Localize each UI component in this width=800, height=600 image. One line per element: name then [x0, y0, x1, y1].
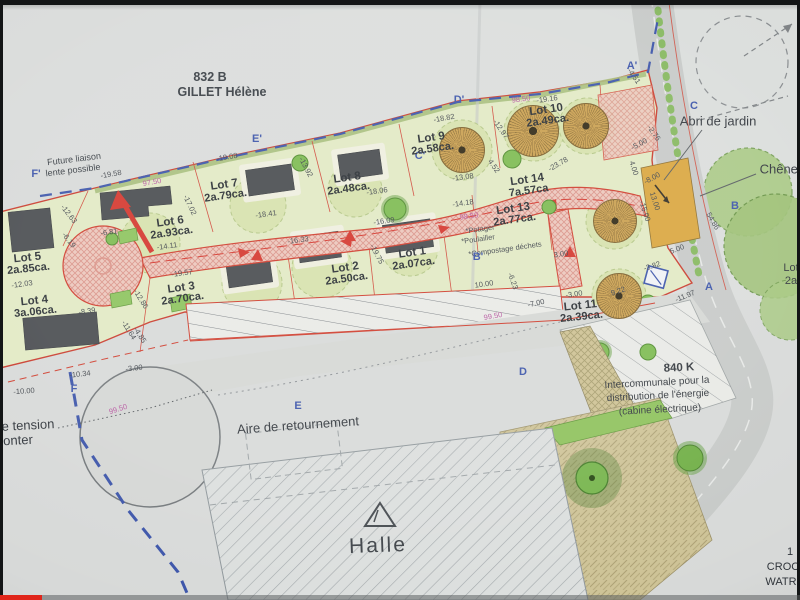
- label-intercommunale-line3: (cabine électrique): [619, 402, 702, 417]
- dimension: -16.33: [287, 234, 309, 246]
- letterbox-left: [0, 0, 3, 600]
- lot-label: Lot 12a.07ca.: [390, 244, 436, 274]
- lot-label: Lot 112a.39ca.: [558, 298, 603, 327]
- dimension: -13.08: [452, 171, 474, 183]
- section-point: C: [690, 100, 698, 112]
- dimension: 98.50: [459, 210, 479, 222]
- section-point: F: [71, 383, 78, 395]
- video-frame: 832 BGILLET HélèneFuture liaisonlente po…: [0, 0, 800, 600]
- lot-label: Lot 102a.49ca.: [524, 101, 570, 131]
- dimension: -13.92: [297, 155, 315, 178]
- dimension: -18.82: [433, 112, 456, 125]
- dimension: -19.58: [100, 168, 123, 181]
- lot-label: Lot 132a.77ca.: [491, 200, 537, 230]
- section-point: D': [454, 94, 465, 106]
- dimension: -4.85: [132, 325, 149, 344]
- label-aire-de-retournement: Aire de retournement: [237, 413, 360, 436]
- dimension: -6.23: [506, 271, 520, 290]
- dimension: -5.00: [629, 136, 648, 152]
- dimension: -12.63: [59, 203, 79, 225]
- section-point: E: [294, 400, 301, 412]
- section-point: A: [705, 281, 713, 293]
- dimension: -3.00: [565, 288, 583, 299]
- label-halle: Halle: [349, 533, 408, 559]
- lot-label: Lot 92a.58ca.: [409, 129, 455, 159]
- lot-label: Lot 43a.06ca.: [12, 293, 57, 322]
- label-watr-fragment: WATR: [765, 576, 796, 588]
- dimension: -8.00: [642, 170, 661, 186]
- section-point: B: [731, 200, 739, 212]
- label-croc-fragment: CROC: [767, 561, 799, 573]
- dimension: -19.75: [368, 242, 386, 265]
- dimension: -3.82: [642, 259, 661, 273]
- dimension: -2.76: [645, 123, 662, 142]
- dimension: 3.00: [553, 249, 569, 260]
- lot-label: Lot 72a.79ca.: [202, 176, 248, 206]
- label-area-fragment: 2a: [785, 275, 797, 287]
- section-point: F': [31, 168, 40, 180]
- parcel-owner: GILLET Hélène: [178, 85, 267, 99]
- dimension: -4.51: [625, 66, 642, 85]
- dimension: 4.52: [486, 157, 502, 174]
- lot-label: Lot 82a.48ca.: [325, 169, 371, 199]
- label-onter-fragment: onter: [3, 432, 33, 449]
- section-point: B': [473, 251, 484, 263]
- dimension: -6.19: [60, 230, 78, 249]
- dimension: -12.97: [491, 118, 511, 141]
- dimension: 4.00: [627, 160, 640, 177]
- lot-label: Lot 52a.85ca.: [5, 250, 50, 279]
- dimension: -19.08: [216, 151, 239, 164]
- dimension: -8.39: [78, 305, 96, 316]
- label-number-fragment: 1: [787, 546, 793, 558]
- label-840k: 840 K: [663, 361, 694, 375]
- section-point: D: [519, 366, 527, 378]
- dimension: 54.86: [704, 211, 721, 232]
- dimension: -18.41: [255, 208, 277, 220]
- lot-label: Lot 147a.57ca: [507, 171, 550, 201]
- dimension: 98.50: [511, 93, 531, 105]
- lot-label: Lot 32a.70ca.: [159, 279, 205, 309]
- dimension: 99.50: [108, 402, 129, 416]
- dimension: 97.50: [142, 176, 162, 188]
- dimension: -12.03: [11, 278, 33, 290]
- dimension: -12.86: [132, 288, 151, 311]
- parcel-number: 832 B: [193, 70, 226, 84]
- letterbox-top: [0, 0, 800, 5]
- dimension: 13.00: [648, 191, 662, 212]
- dimension: 99.50: [483, 310, 503, 322]
- dimension: -23.78: [547, 155, 570, 173]
- section-point: E': [252, 133, 262, 145]
- dimension: -16.09: [373, 215, 395, 227]
- video-progress-bar[interactable]: [0, 595, 800, 600]
- label-abri-de-jardin: Abri de jardin: [680, 114, 757, 129]
- dimension: 5.00: [669, 242, 686, 256]
- dimension: -10.00: [13, 386, 35, 396]
- lot-label: Lot 22a.50ca.: [323, 259, 369, 289]
- dimension: -10.34: [69, 368, 91, 379]
- text-layer: 832 BGILLET HélèneFuture liaisonlente po…: [0, 0, 800, 600]
- dimension: -11.97: [674, 288, 697, 304]
- video-progress-played: [0, 595, 42, 600]
- dimension: -19.57: [171, 267, 193, 279]
- dimension: -3.00: [125, 363, 143, 374]
- dimension: -14.18: [452, 197, 474, 209]
- label-chenes: Chênes: [760, 162, 800, 177]
- dimension: -6.81: [100, 226, 118, 237]
- dimension: 10.00: [474, 278, 494, 290]
- dimension: -7.00: [527, 297, 546, 309]
- lot-label: Lot 62a.93ca.: [148, 213, 194, 243]
- dimension: 9.22: [610, 284, 627, 297]
